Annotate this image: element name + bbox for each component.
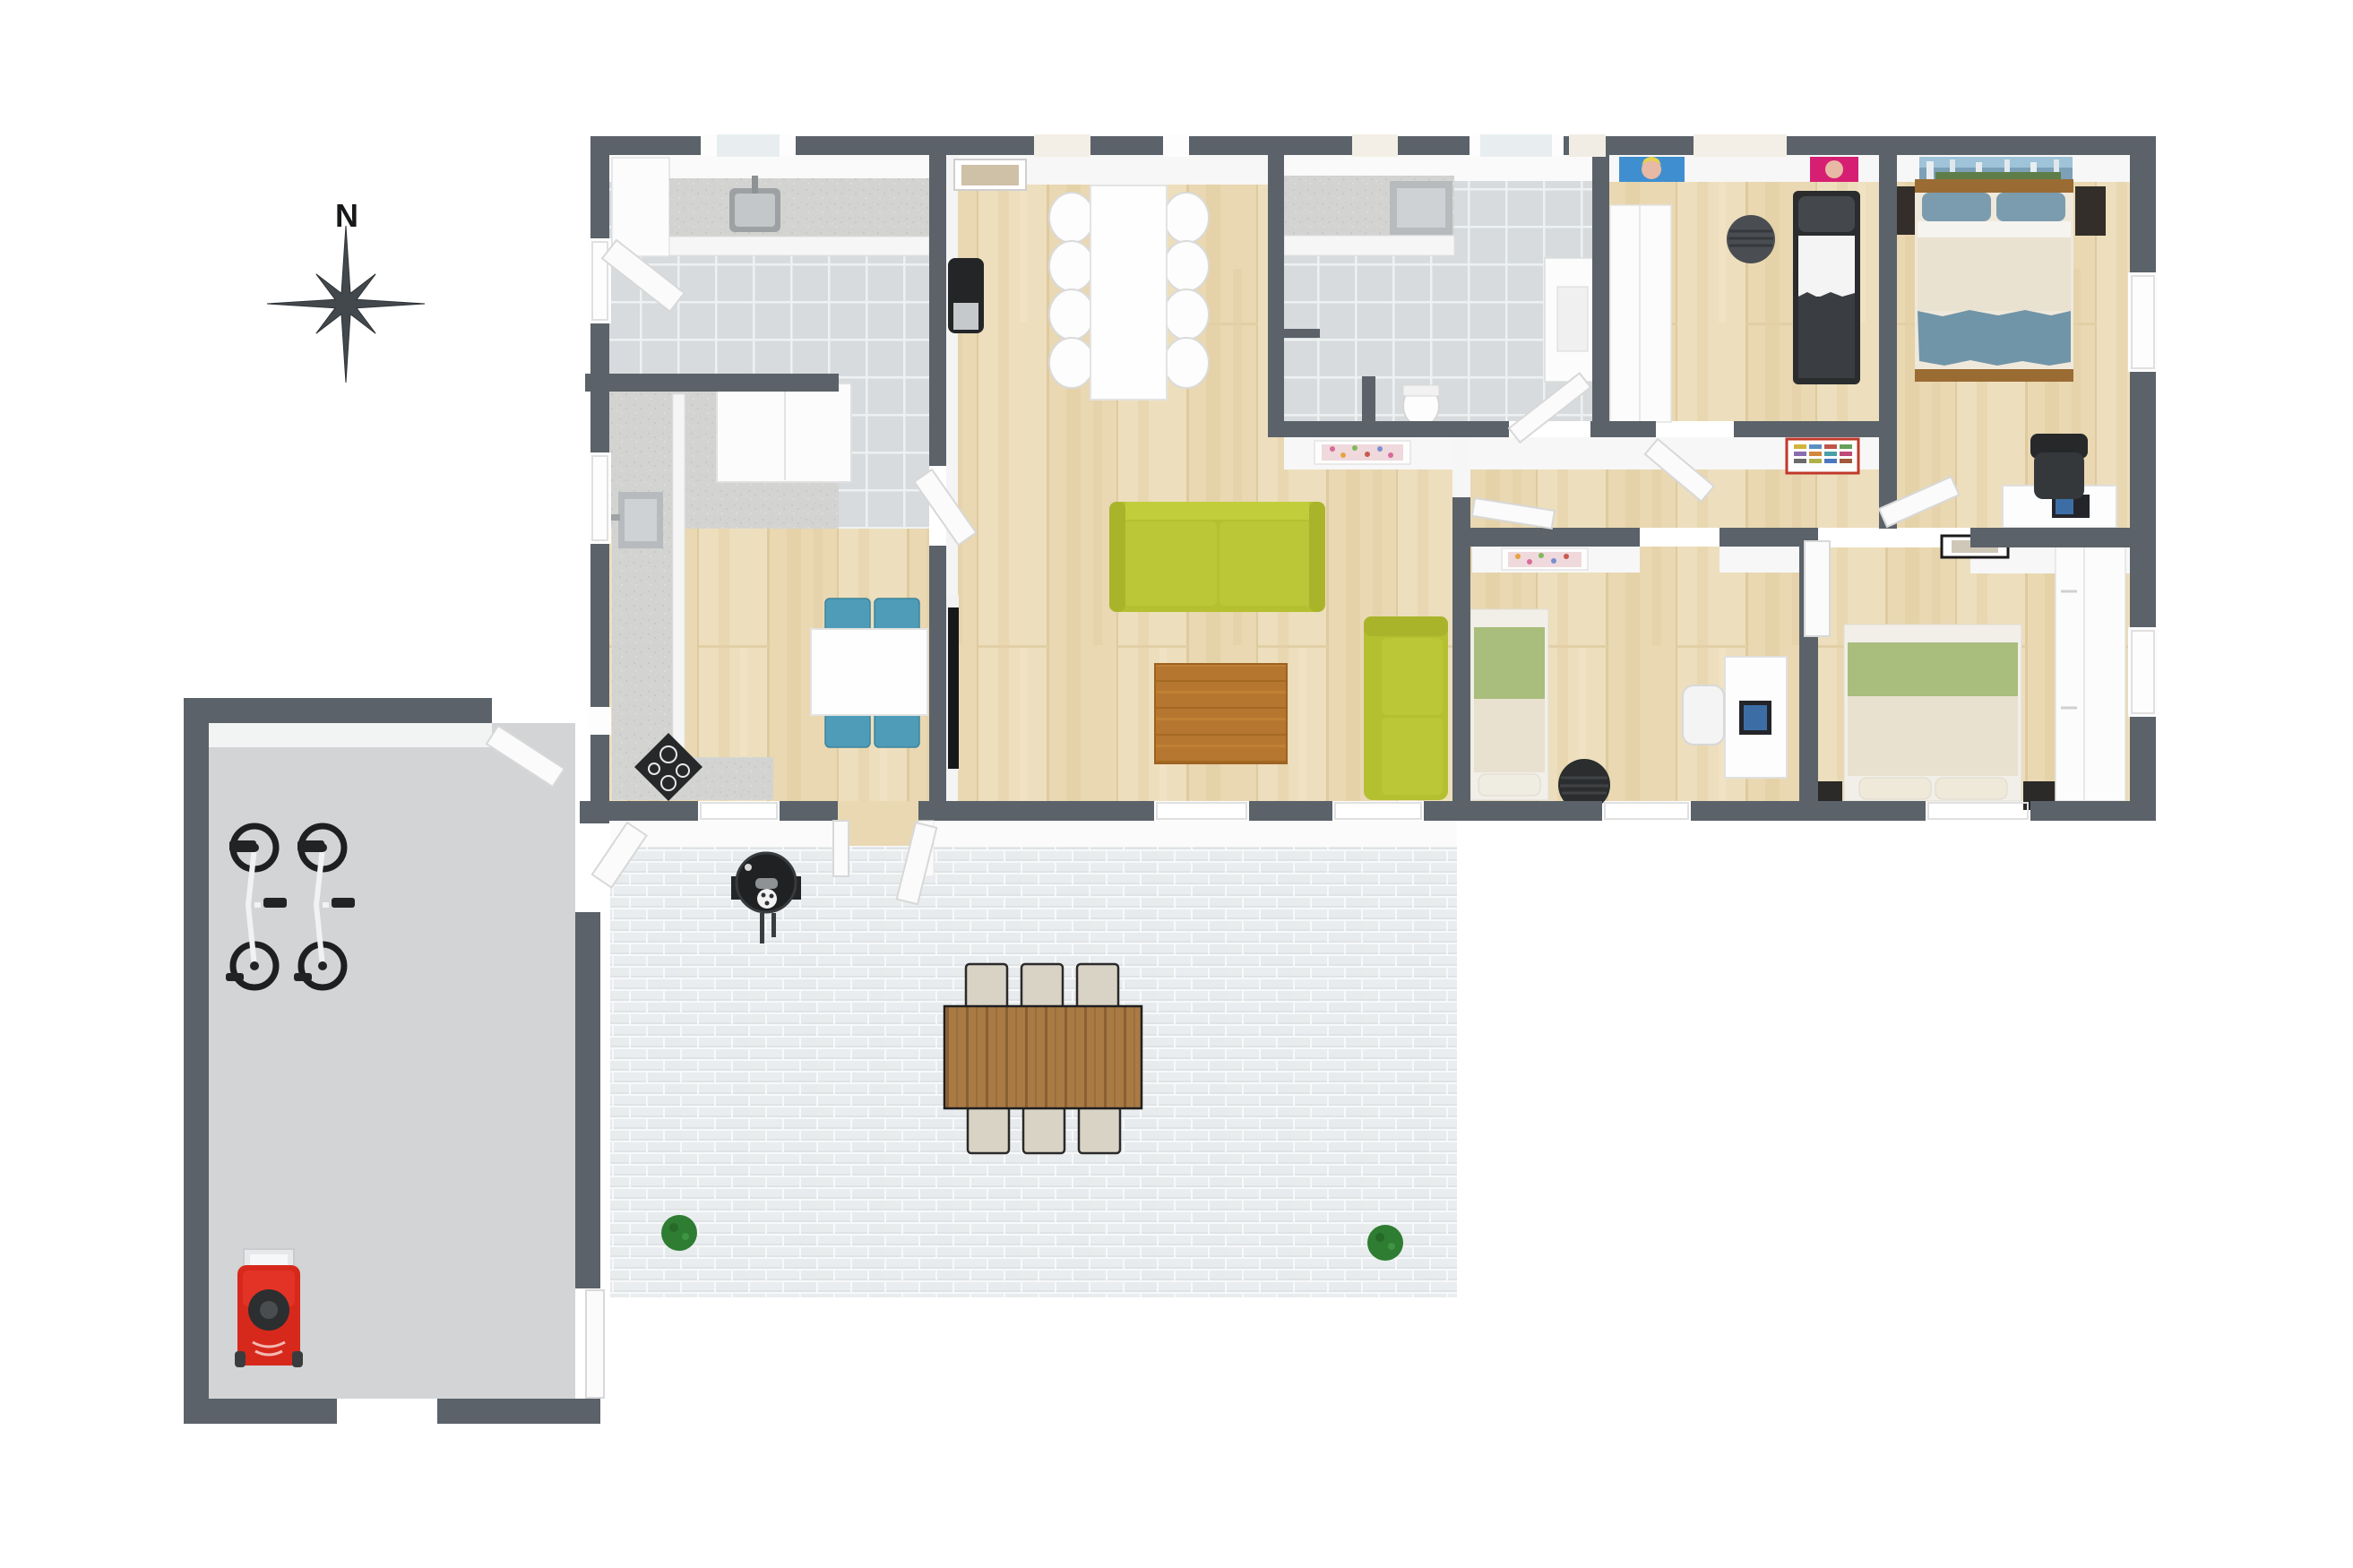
- svg-text:N: N: [335, 197, 358, 234]
